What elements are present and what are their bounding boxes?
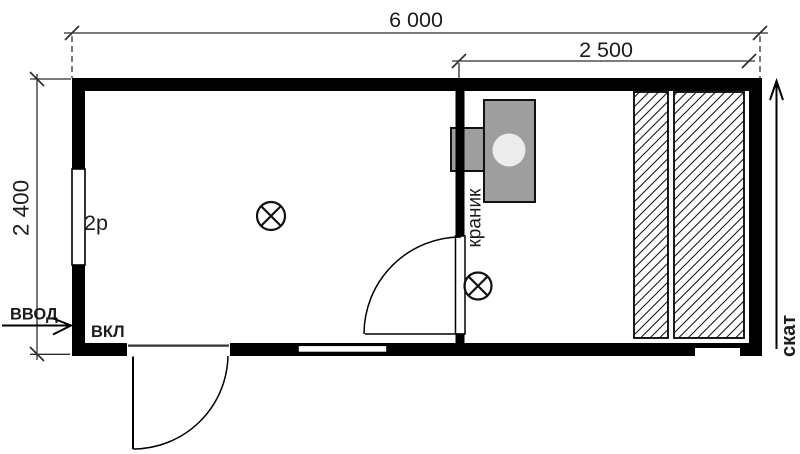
svg-text:скат: скат	[778, 315, 800, 357]
svg-text:2р: 2р	[84, 211, 108, 235]
svg-text:2 500: 2 500	[579, 38, 633, 62]
svg-text:краник: краник	[465, 188, 486, 248]
svg-text:6 000: 6 000	[389, 8, 443, 32]
svg-text:ВКЛ: ВКЛ	[91, 323, 125, 341]
svg-text:2 400: 2 400	[9, 180, 34, 236]
svg-text:ВВОД: ВВОД	[10, 306, 58, 324]
